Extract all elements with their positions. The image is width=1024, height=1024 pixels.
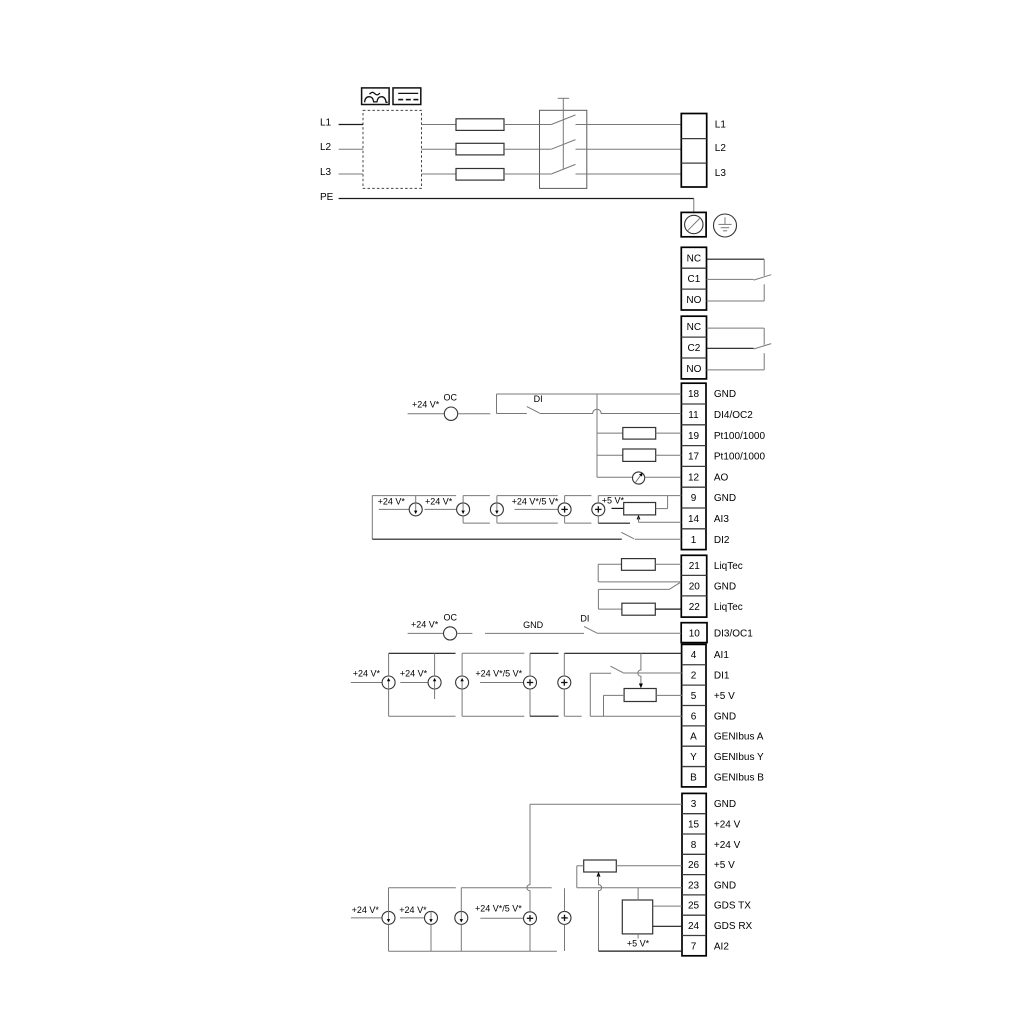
svg-text:+24 V*: +24 V* — [400, 668, 428, 678]
svg-text:GND: GND — [714, 493, 736, 504]
svg-text:+24 V*: +24 V* — [399, 905, 427, 915]
svg-text:+24 V*: +24 V* — [352, 905, 380, 915]
svg-text:LiqTec: LiqTec — [714, 561, 743, 572]
svg-text:4: 4 — [691, 650, 697, 661]
svg-text:Pt100/1000: Pt100/1000 — [714, 431, 766, 442]
svg-text:17: 17 — [688, 452, 700, 463]
svg-text:+24 V*/5 V*: +24 V*/5 V* — [475, 904, 522, 914]
svg-text:A: A — [690, 732, 697, 743]
svg-text:OC: OC — [444, 393, 458, 403]
svg-text:AI3: AI3 — [714, 514, 729, 525]
svg-text:OC: OC — [444, 612, 458, 622]
svg-text:NC: NC — [687, 322, 701, 333]
svg-text:GDS RX: GDS RX — [714, 921, 753, 932]
svg-text:L3: L3 — [715, 168, 727, 179]
svg-text:+24 V*: +24 V* — [425, 497, 453, 507]
svg-text:DI: DI — [580, 614, 589, 624]
svg-text:12: 12 — [688, 472, 700, 483]
svg-text:+24 V*: +24 V* — [411, 620, 439, 630]
svg-text:GND: GND — [714, 581, 736, 592]
svg-text:DI2: DI2 — [714, 535, 730, 546]
svg-text:DI3/OC1: DI3/OC1 — [714, 629, 753, 640]
svg-text:NO: NO — [686, 295, 701, 306]
svg-text:+5 V*: +5 V* — [602, 496, 625, 506]
svg-text:GENIbus A: GENIbus A — [714, 732, 764, 743]
svg-text:LiqTec: LiqTec — [714, 602, 743, 613]
svg-text:L2: L2 — [715, 143, 727, 154]
svg-text:23: 23 — [688, 880, 700, 891]
svg-text:DI1: DI1 — [714, 671, 730, 682]
svg-text:5: 5 — [691, 691, 697, 702]
svg-text:L3: L3 — [320, 167, 332, 178]
svg-text:7: 7 — [691, 941, 697, 952]
svg-text:GENIbus Y: GENIbus Y — [714, 752, 764, 763]
svg-text:+5 V: +5 V — [714, 691, 735, 702]
svg-text:+24 V*/5 V*: +24 V*/5 V* — [475, 668, 522, 678]
svg-text:+24 V*: +24 V* — [412, 400, 440, 410]
svg-text:B: B — [690, 772, 697, 783]
svg-text:26: 26 — [688, 860, 700, 871]
svg-text:2: 2 — [691, 671, 697, 682]
svg-text:+5 V: +5 V — [714, 860, 735, 871]
svg-text:L1: L1 — [715, 120, 727, 131]
svg-text:+24 V: +24 V — [714, 840, 741, 851]
svg-text:+24 V*/5 V*: +24 V*/5 V* — [512, 497, 559, 507]
svg-text:C1: C1 — [688, 274, 701, 285]
svg-text:AI1: AI1 — [714, 650, 729, 661]
svg-text:+5 V*: +5 V* — [627, 938, 650, 948]
svg-text:3: 3 — [691, 799, 697, 810]
svg-text:L2: L2 — [320, 142, 332, 153]
svg-text:AI2: AI2 — [714, 941, 729, 952]
svg-text:NO: NO — [686, 364, 701, 375]
svg-text:+24 V*: +24 V* — [353, 668, 381, 678]
svg-text:1: 1 — [691, 535, 697, 546]
svg-text:L1: L1 — [320, 118, 332, 129]
svg-text:14: 14 — [688, 514, 700, 525]
svg-text:GND: GND — [714, 711, 736, 722]
svg-text:+24 V*: +24 V* — [378, 497, 406, 507]
svg-text:8: 8 — [691, 840, 697, 851]
svg-text:DI: DI — [534, 394, 543, 404]
svg-text:21: 21 — [689, 561, 701, 572]
svg-text:25: 25 — [688, 901, 700, 912]
svg-text:+24 V: +24 V — [714, 819, 741, 830]
svg-text:AO: AO — [714, 472, 729, 483]
svg-text:9: 9 — [691, 493, 697, 504]
svg-text:10: 10 — [689, 629, 701, 640]
svg-text:GND: GND — [714, 880, 736, 891]
svg-text:24: 24 — [688, 921, 700, 932]
svg-text:GDS TX: GDS TX — [714, 901, 751, 912]
svg-text:18: 18 — [688, 389, 700, 400]
svg-text:15: 15 — [688, 819, 700, 830]
svg-text:11: 11 — [688, 410, 699, 421]
svg-text:Pt100/1000: Pt100/1000 — [714, 452, 766, 463]
svg-text:PE: PE — [320, 192, 334, 203]
svg-text:19: 19 — [688, 431, 700, 442]
svg-text:20: 20 — [689, 581, 701, 592]
svg-text:NC: NC — [687, 253, 701, 264]
svg-text:22: 22 — [689, 602, 701, 613]
svg-text:GENIbus B: GENIbus B — [714, 772, 764, 783]
svg-text:Y: Y — [690, 752, 697, 763]
svg-text:6: 6 — [691, 711, 697, 722]
svg-text:C2: C2 — [688, 343, 701, 354]
svg-text:GND: GND — [714, 799, 736, 810]
svg-text:GND: GND — [714, 389, 736, 400]
svg-text:GND: GND — [523, 620, 544, 630]
svg-text:DI4/OC2: DI4/OC2 — [714, 410, 753, 421]
